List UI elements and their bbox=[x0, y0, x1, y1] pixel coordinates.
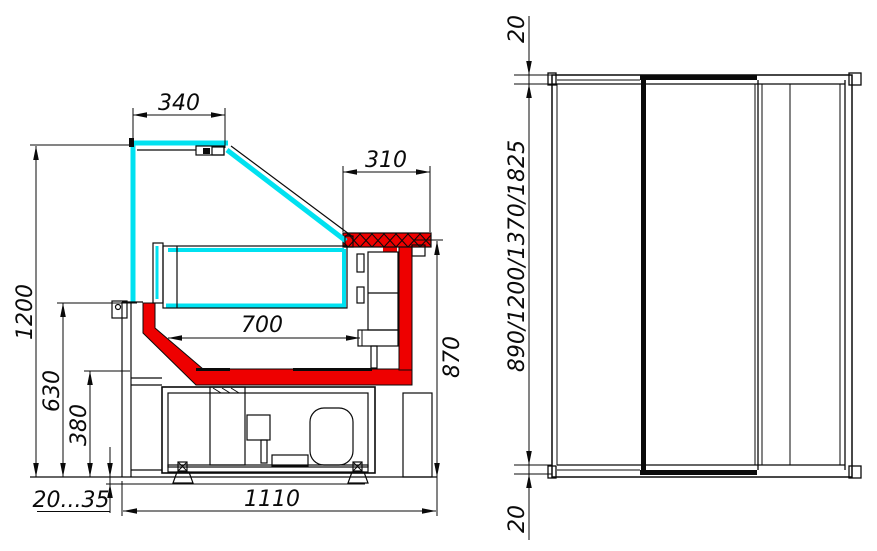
latch-screw bbox=[116, 305, 121, 310]
dim-canopy-340: 340 bbox=[133, 91, 225, 148]
dim-label-lengths: 890/1200/1370/1825 bbox=[505, 140, 530, 372]
dim-label-20-35: 20...35 bbox=[33, 488, 110, 513]
side-view: 20 890/1200/1370/1825 20 bbox=[505, 15, 861, 540]
slope-frame-line bbox=[231, 146, 353, 237]
duct-clip-upper bbox=[357, 254, 364, 272]
dim-label-1200: 1200 bbox=[13, 284, 38, 340]
red-rear-wall bbox=[399, 247, 412, 370]
middle-panel-top-bar bbox=[640, 75, 757, 80]
section-view: 340 310 700 1110 bbox=[13, 91, 465, 516]
dim-label-top-20: 20 bbox=[505, 15, 530, 43]
dim-label-870: 870 bbox=[440, 336, 465, 378]
lamp bbox=[203, 148, 210, 154]
dim-legs-20-35: 20...35 bbox=[33, 447, 113, 513]
display-bed bbox=[163, 246, 347, 308]
dim-counter-870: 870 bbox=[415, 240, 465, 516]
duct-stem bbox=[371, 346, 377, 368]
side-outer-body bbox=[552, 75, 852, 477]
compressor bbox=[310, 408, 353, 465]
dim-label-310: 310 bbox=[365, 148, 407, 173]
dim-label-630: 630 bbox=[40, 370, 65, 412]
rear-lower-panel bbox=[403, 393, 432, 477]
air-duct bbox=[368, 252, 398, 330]
dim-well-700: 700 bbox=[168, 313, 362, 346]
dim-depth-1110: 1110 bbox=[122, 481, 436, 516]
glass-slope bbox=[227, 150, 346, 241]
machine-compartment bbox=[162, 387, 375, 473]
duct-bracket bbox=[358, 330, 398, 346]
dim-label-1110: 1110 bbox=[244, 487, 300, 512]
control-box bbox=[247, 415, 270, 440]
dim-base-380: 380 bbox=[67, 371, 130, 477]
dim-shelf-310: 310 bbox=[343, 148, 430, 232]
side-structure bbox=[548, 73, 861, 478]
side-dimensions: 20 890/1200/1370/1825 20 bbox=[505, 15, 552, 540]
technical-drawing-page: 340 310 700 1110 bbox=[0, 0, 877, 551]
duct-clip-lower bbox=[357, 287, 364, 303]
dim-label-700: 700 bbox=[241, 313, 283, 338]
middle-panel-bottom-bar bbox=[640, 470, 757, 475]
corner-cap-bottom-right bbox=[849, 466, 861, 478]
technical-drawing: 340 310 700 1110 bbox=[0, 0, 877, 551]
dim-label-bottom-20: 20 bbox=[505, 505, 530, 533]
condenser bbox=[210, 387, 245, 465]
glass-panels bbox=[130, 143, 346, 306]
middle-panel-post bbox=[641, 80, 646, 470]
dim-label-340: 340 bbox=[158, 91, 200, 116]
dim-bottom-overhang-20: 20 bbox=[505, 474, 532, 533]
dim-label-380: 380 bbox=[67, 404, 92, 446]
dim-top-overhang-20: 20 bbox=[505, 15, 532, 98]
dim-length-options: 890/1200/1370/1825 bbox=[505, 140, 532, 465]
base-rail bbox=[168, 465, 368, 472]
